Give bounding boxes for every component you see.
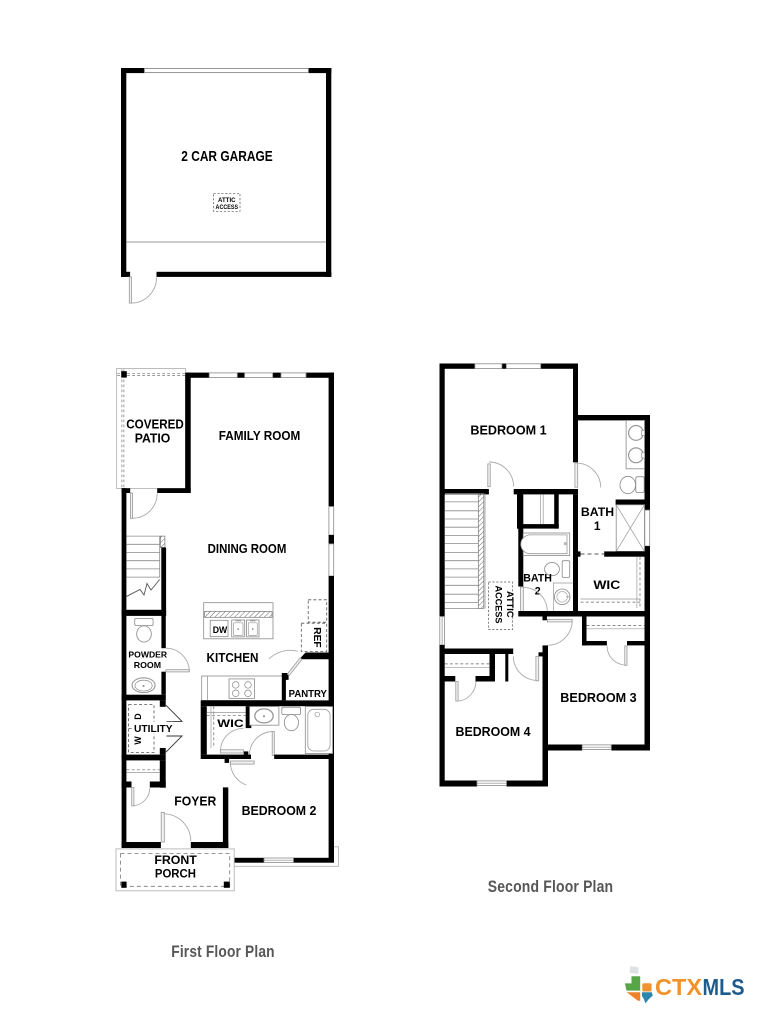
svg-text:CTX: CTX [655,974,702,1000]
svg-text:FRONT: FRONT [154,853,197,867]
svg-text:DINING ROOM: DINING ROOM [208,542,287,556]
svg-text:BEDROOM 3: BEDROOM 3 [560,691,636,705]
svg-text:PATIO: PATIO [135,431,171,445]
svg-text:COVERED: COVERED [126,417,184,431]
svg-text:ATTIC: ATTIC [505,591,515,618]
svg-text:Second Floor Plan: Second Floor Plan [488,878,614,896]
svg-text:1: 1 [594,519,601,533]
svg-text:KITCHEN: KITCHEN [207,650,259,665]
svg-text:UTILITY: UTILITY [134,724,173,735]
svg-text:BATH: BATH [523,573,552,585]
svg-text:REF: REF [311,627,322,647]
svg-text:FAMILY ROOM: FAMILY ROOM [219,429,301,443]
svg-text:MLS: MLS [703,974,745,1000]
svg-text:PORCH: PORCH [155,867,196,881]
svg-text:BEDROOM 4: BEDROOM 4 [456,725,531,739]
svg-text:D: D [133,713,143,719]
svg-text:First Floor Plan: First Floor Plan [171,943,275,961]
svg-text:WIC: WIC [593,578,620,592]
svg-text:ROOM: ROOM [134,660,161,670]
svg-text:ACCESS: ACCESS [216,204,239,211]
svg-text:2 CAR GARAGE: 2 CAR GARAGE [181,149,273,165]
svg-text:DW: DW [213,625,228,636]
svg-text:ATTIC: ATTIC [218,197,236,204]
svg-text:2: 2 [535,586,541,598]
svg-text:BATH: BATH [581,505,614,519]
svg-text:ACCESS: ACCESS [493,586,503,624]
svg-text:POWDER: POWDER [128,650,167,660]
svg-text:W: W [133,736,143,745]
svg-text:BEDROOM 1: BEDROOM 1 [470,423,546,437]
svg-text:PANTRY: PANTRY [289,689,327,700]
svg-text:FOYER: FOYER [174,794,216,808]
svg-text:BEDROOM 2: BEDROOM 2 [242,804,317,818]
